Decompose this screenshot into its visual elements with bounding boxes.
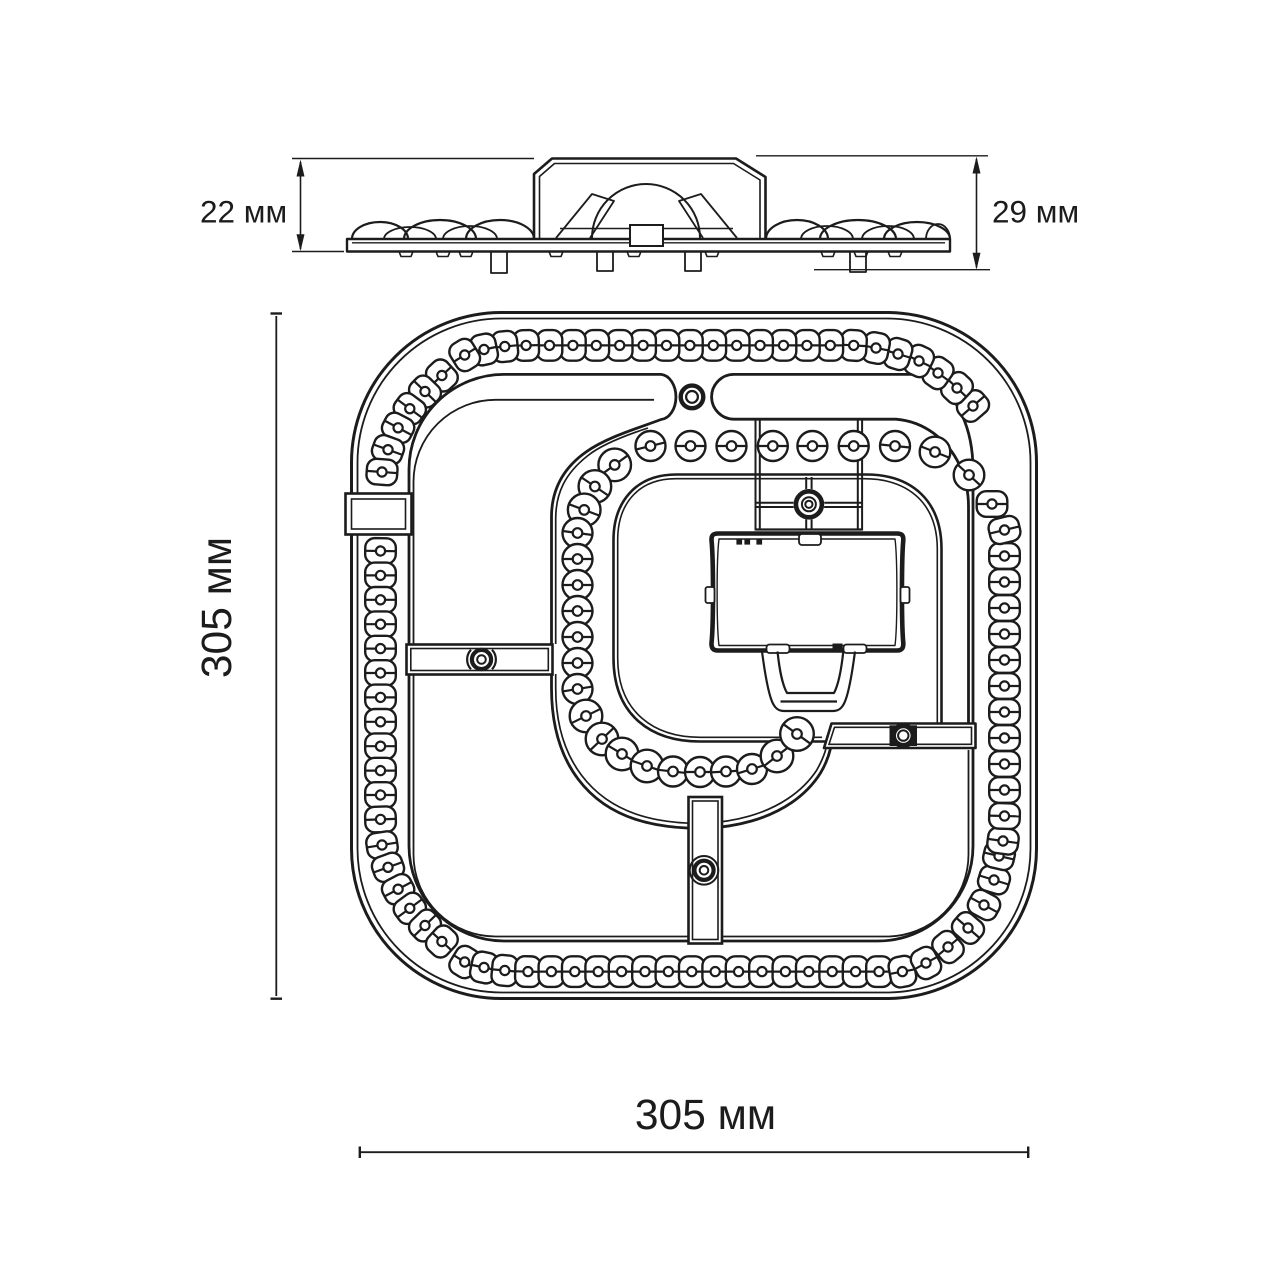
svg-text:305 мм: 305 мм	[194, 537, 241, 678]
svg-text:305 мм: 305 мм	[635, 1092, 776, 1139]
svg-text:29 мм: 29 мм	[992, 194, 1079, 230]
svg-text:22 мм: 22 мм	[200, 194, 287, 230]
